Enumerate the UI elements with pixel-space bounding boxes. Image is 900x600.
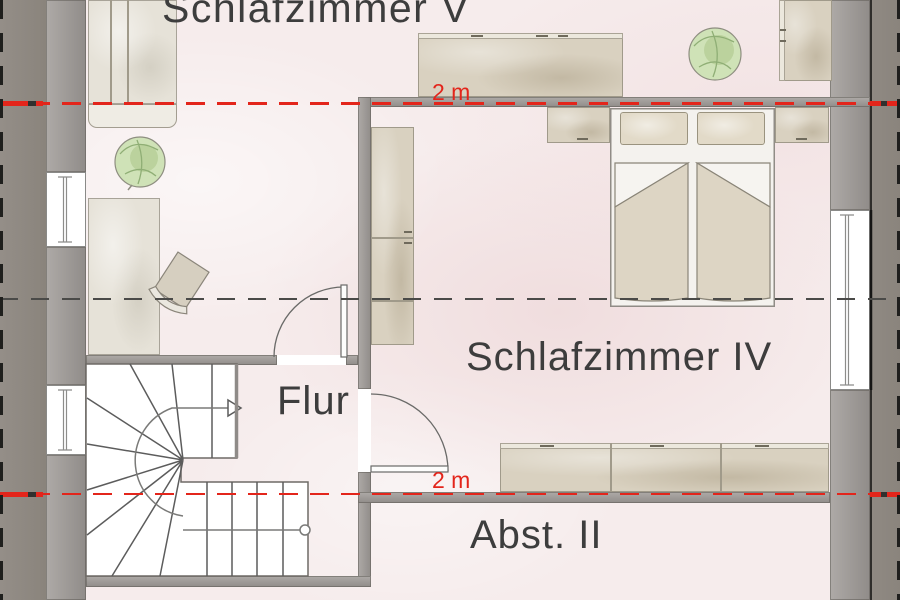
height-label-2m-top: 2 m — [432, 79, 470, 106]
room-label-schlafzimmer-iv: Schlafzimmer IV — [466, 335, 772, 380]
desk-chair — [146, 250, 213, 319]
section-center-line — [0, 298, 900, 300]
height-line-2m-bottom-margin-right — [870, 492, 900, 497]
floor-plan: Schlafzimmer V Schlafzimmer IV Flur Abst… — [0, 0, 900, 600]
duvet-left — [615, 163, 688, 301]
edge-dash-line-right — [897, 0, 900, 600]
room-label-flur: Flur — [277, 379, 350, 424]
door-schlafzimmerv — [274, 285, 347, 357]
duvet-right — [697, 163, 770, 301]
height-line-2m-top-margin-right — [870, 101, 900, 106]
plant-schlafzimmeriv — [689, 28, 741, 80]
edge-dash-line-left — [0, 0, 3, 600]
height-label-2m-bottom: 2 m — [432, 467, 470, 494]
room-label-abst-ii: Abst. II — [470, 513, 603, 558]
door-schlafzimmeriv — [371, 394, 448, 472]
height-line-2m-top-margin-left — [0, 101, 46, 106]
plant-schlafzimmerv — [115, 137, 165, 190]
height-line-2m-bottom-margin-left — [0, 492, 46, 497]
room-label-schlafzimmer-v: Schlafzimmer V — [162, 0, 470, 32]
